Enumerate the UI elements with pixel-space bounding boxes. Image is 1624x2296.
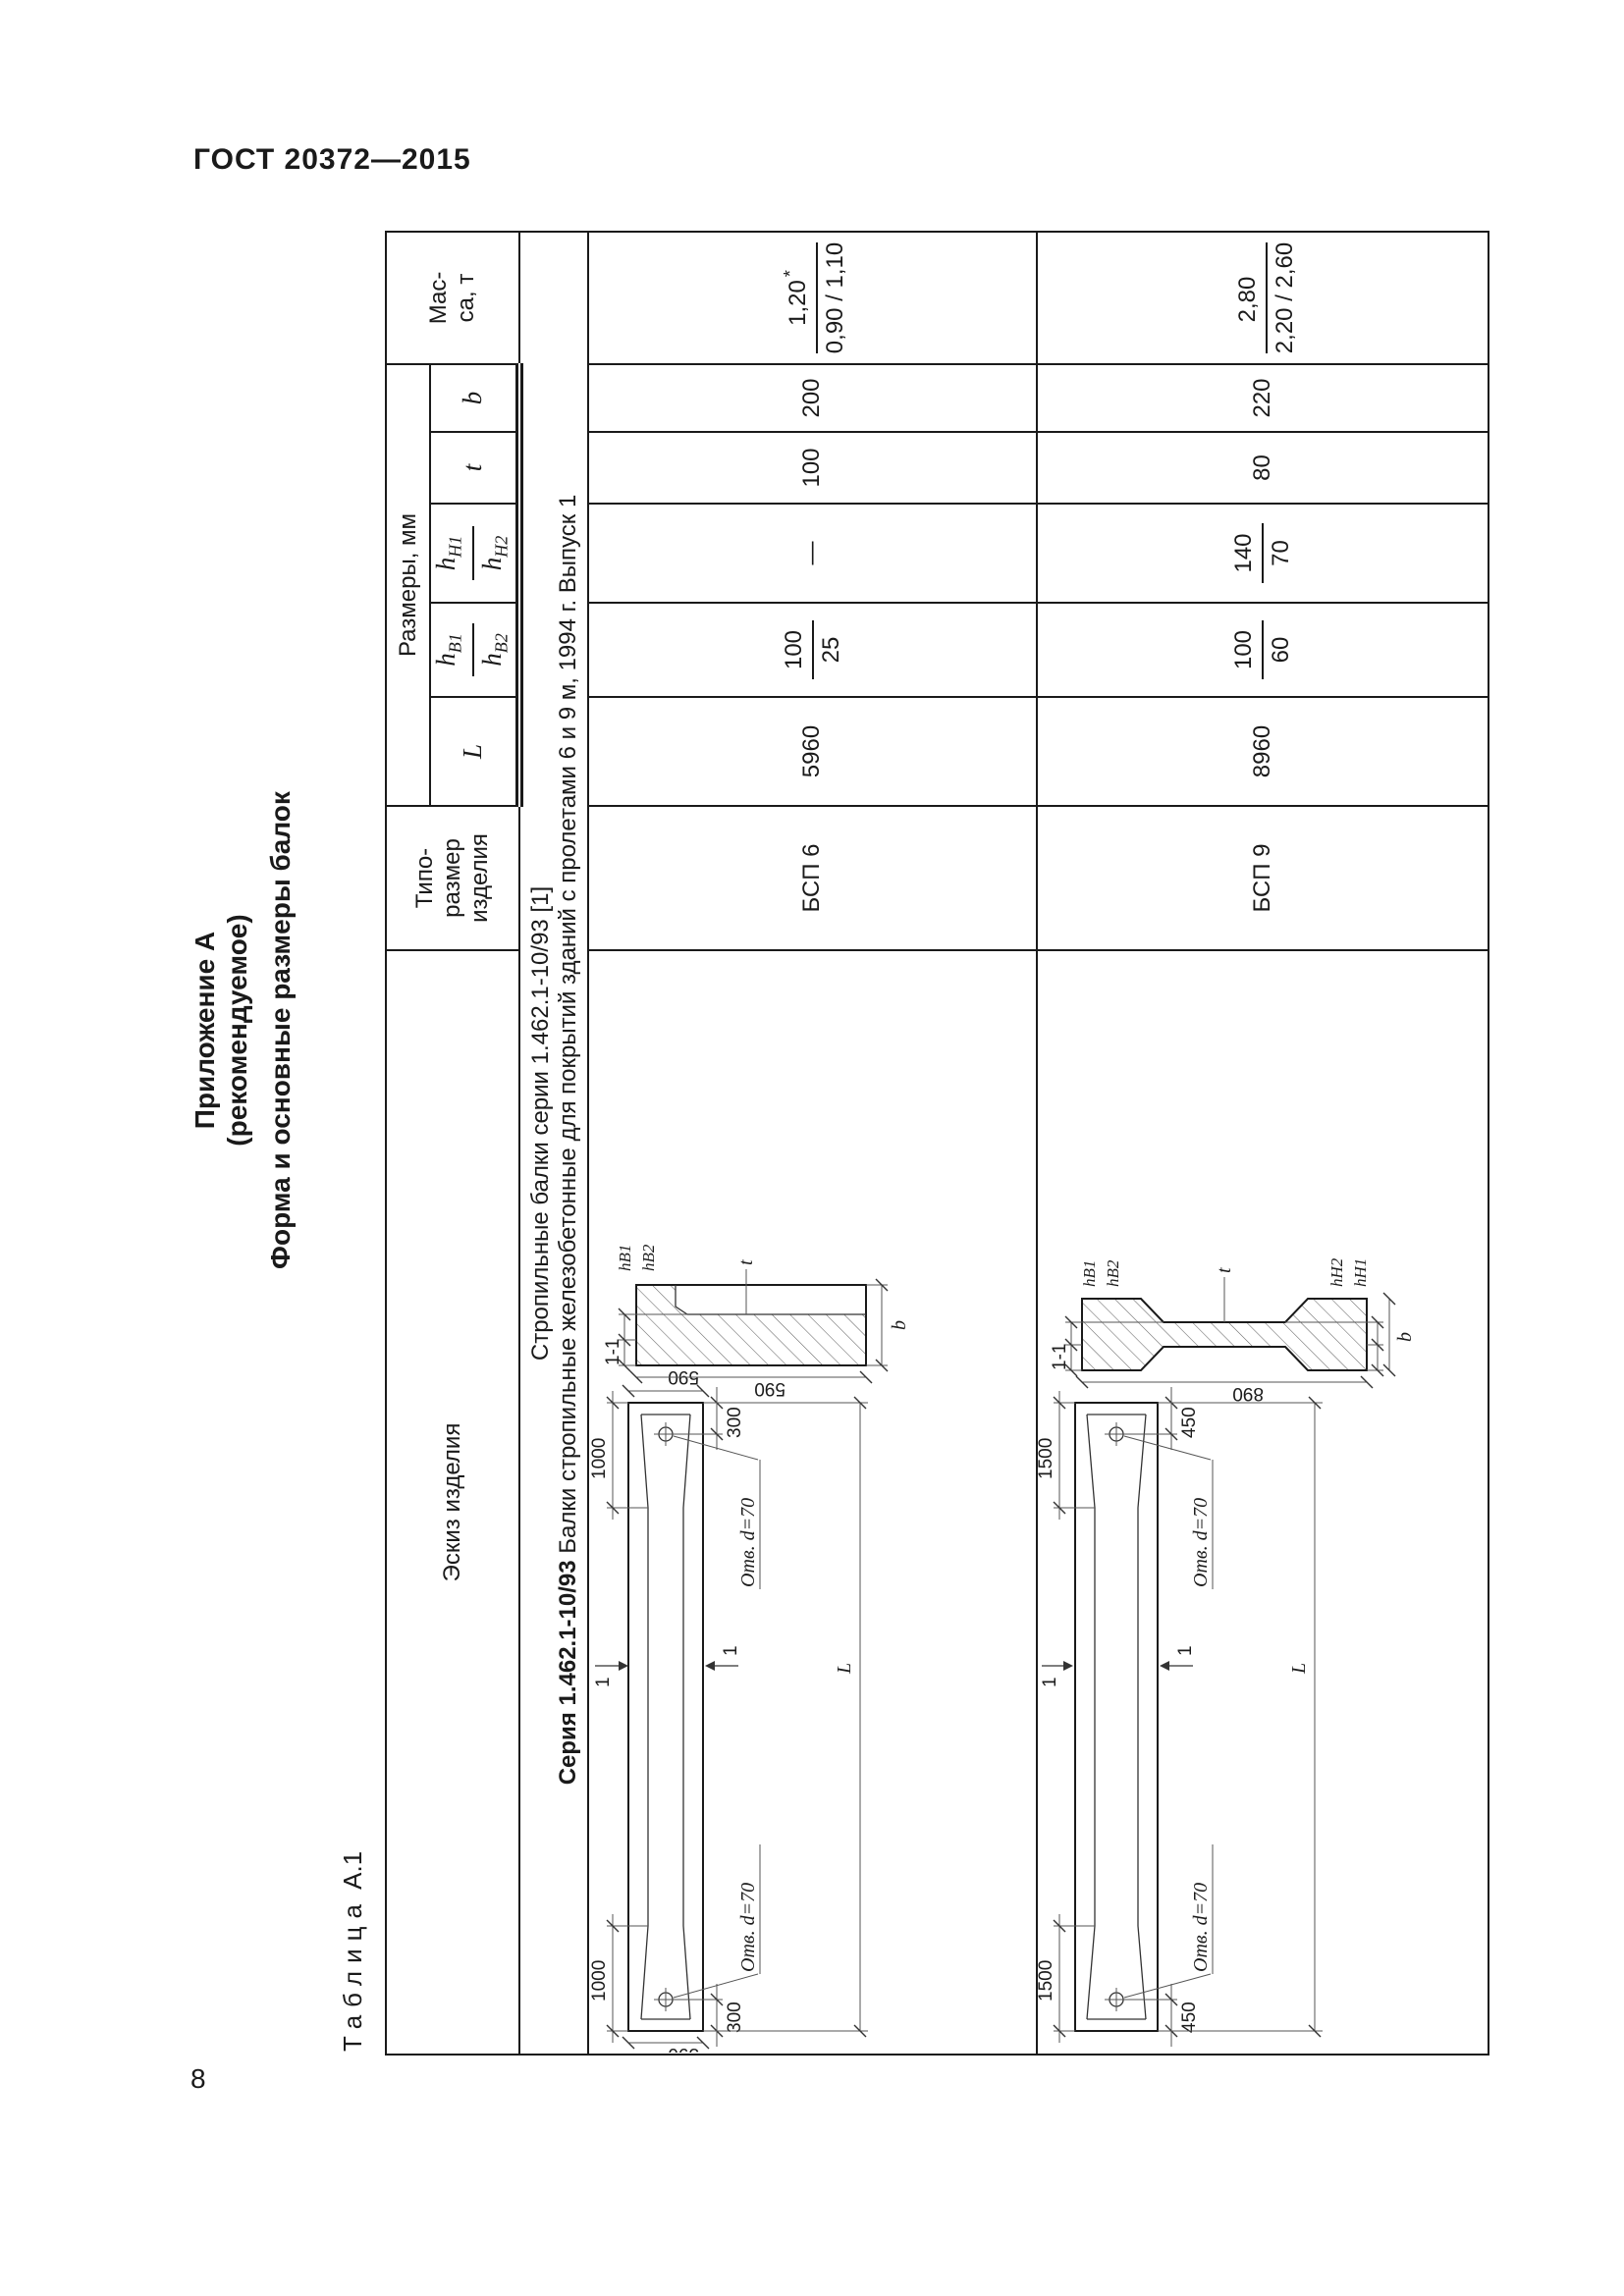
document-page: ГОСТ 20372—2015 8 Приложение А (рекоменд… [0, 0, 1624, 2296]
section-hb1-dim: hВ1 [1080, 1260, 1099, 1287]
section-hb2-dim: hВ2 [639, 1244, 658, 1271]
table-row: Отв. d=70 Отв. d=70 450 450 1500 [1037, 232, 1489, 2055]
appendix-title-line2: (рекомендуемое) [221, 120, 253, 1941]
hole-offset-dim: 450 [1179, 2002, 1200, 2033]
col-header-L: L [430, 697, 519, 806]
b-value: 220 [1037, 364, 1489, 432]
hole-offset-dim: 450 [1179, 1407, 1200, 1438]
b-value: 200 [588, 364, 1037, 432]
series-section-cell: Стропильные балки серии 1.462.1-10/93 [1… [519, 232, 588, 2055]
beam-length-dim: L [834, 1663, 855, 1675]
section-hb2-dim: hВ2 [1104, 1259, 1122, 1287]
beam-elevation-outline [1075, 1403, 1158, 2031]
section-hn1-dim: hН1 [1351, 1258, 1370, 1287]
section-height-dim: 890 [1232, 1383, 1264, 1404]
beam-elevation-outline [628, 1403, 703, 2031]
col-header-dimensions-group: Размеры, мм [386, 364, 430, 806]
length-value: 5960 [588, 697, 1037, 806]
hB-numerator: hВ1 [431, 623, 474, 676]
chamfer-length-dim: 1000 [589, 1438, 610, 1479]
beam-drawing-bsp9: Отв. d=70 Отв. d=70 450 450 1500 [1038, 952, 1481, 2053]
section-hn2-dim: hН2 [1327, 1257, 1346, 1287]
section-width-dim: b [889, 1320, 910, 1330]
appendix-title: Приложение А (рекомендуемое) Форма и осн… [189, 120, 297, 1941]
chamfer-length-dim: 1500 [1038, 1438, 1056, 1479]
series-line-2: Серия 1.462.1-10/93 Балки стропильные же… [555, 233, 582, 2054]
table-caption-word: Таблица [338, 1896, 367, 2052]
section-cut-mark: 1 [721, 1645, 741, 1656]
table-caption-id: А.1 [338, 1851, 367, 1890]
section-cut-mark: 1 [1175, 1645, 1196, 1656]
hh-value: — [588, 504, 1037, 603]
beam-length-dim: L [1288, 1663, 1310, 1675]
mass-value: 2,80 2,20 / 2,60 [1037, 232, 1489, 364]
col-header-hB: hВ1 hВ2 [430, 603, 519, 697]
hb-value: 10060 [1037, 603, 1489, 697]
table-caption: Таблица А.1 [338, 1851, 368, 2052]
hole-callout-label: Отв. d=70 [1190, 1498, 1212, 1587]
length-value: 8960 [1037, 697, 1489, 806]
sketch-cell-bsp6: Отв. d=70 Отв. d=70 300 300 1000 [588, 950, 1037, 2055]
hH-denominator: hН2 [474, 526, 514, 581]
section-height-dim: 590 [754, 1378, 785, 1399]
type-size-value: БСП 9 [1037, 806, 1489, 950]
col-header-type-size: Типо- размер изделия [386, 806, 519, 950]
rotated-content: Приложение А (рекомендуемое) Форма и осн… [189, 187, 1534, 2103]
chamfer-length-dim: 1000 [589, 1960, 610, 2002]
col-header-sketch: Эскиз изделия [386, 950, 519, 2055]
section-t-dim: t [1214, 1267, 1235, 1273]
hH-numerator: hН1 [431, 526, 474, 581]
section-cut-mark: 1 [593, 1677, 614, 1687]
header-row-1: Эскиз изделия Типо- размер изделия Разме… [386, 232, 430, 2055]
t-value: 80 [1037, 432, 1489, 504]
hole-callout-label: Отв. d=70 [737, 1883, 759, 1972]
series-section-row: Стропильные балки серии 1.462.1-10/93 [1… [519, 232, 588, 2055]
col-header-b: b [430, 364, 519, 432]
col-header-hH: hН1 hН2 [430, 504, 519, 603]
beam-drawing-bsp6: Отв. d=70 Отв. d=70 300 300 1000 [589, 952, 1029, 2053]
t-value: 100 [588, 432, 1037, 504]
col-header-mass: Мас- са, т [386, 232, 519, 364]
beam-end-height-dim: 590 [668, 2044, 699, 2053]
hole-offset-dim: 300 [725, 2002, 745, 2033]
type-size-value: БСП 6 [588, 806, 1037, 950]
hole-callout-label: Отв. d=70 [737, 1498, 759, 1587]
series-line-1: Стропильные балки серии 1.462.1-10/93 [1… [527, 233, 555, 2054]
hh-value: 14070 [1037, 504, 1489, 603]
hole-offset-dim: 300 [725, 1407, 745, 1438]
appendix-title-line3: Форма и основные размеры балок [264, 120, 297, 1941]
appendix-title-line1: Приложение А [189, 120, 221, 1941]
col-header-t: t [430, 432, 519, 504]
chamfer-length-dim: 1500 [1038, 1960, 1056, 2002]
hB-denominator: hВ2 [474, 623, 514, 676]
table-row: Отв. d=70 Отв. d=70 300 300 1000 [588, 232, 1037, 2055]
section-t-dim: t [735, 1259, 757, 1265]
beams-table: Эскиз изделия Типо- размер изделия Разме… [385, 231, 1489, 2056]
section-width-dim: b [1394, 1332, 1416, 1342]
section-hb1-dim: hВ1 [616, 1245, 634, 1271]
hole-callout-label: Отв. d=70 [1190, 1883, 1212, 1972]
mass-value: 1,20* 0,90 / 1,10 [588, 232, 1037, 364]
sketch-cell-bsp9: Отв. d=70 Отв. d=70 450 450 1500 [1037, 950, 1489, 2055]
section-hatched-area [636, 1285, 866, 1365]
hb-value: 10025 [588, 603, 1037, 697]
section-cut-mark: 1 [1040, 1677, 1060, 1687]
